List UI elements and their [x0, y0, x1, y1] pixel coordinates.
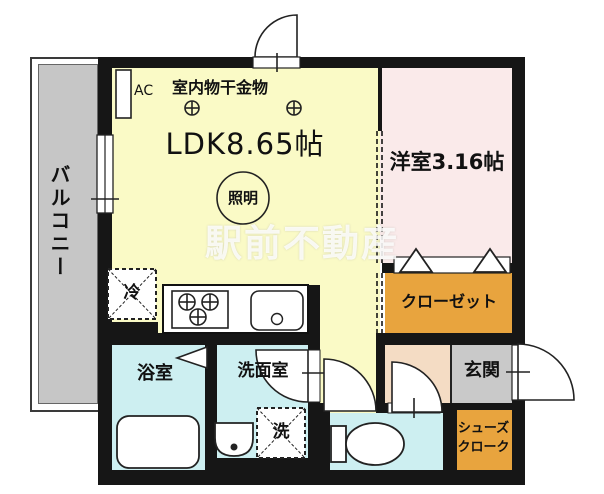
- wall-north: [98, 57, 525, 68]
- wall-bath-washroom: [205, 345, 217, 470]
- wall-genkan-shoes: [452, 403, 512, 410]
- wall-south: [98, 470, 525, 485]
- wall-west: [98, 57, 112, 478]
- wall-east: [512, 57, 525, 478]
- wall-closet-north: [382, 263, 512, 273]
- room-ldk-hall: [320, 333, 377, 413]
- floor-plan: バルコニー AC 室内物干金物 LDK8.65帖 照明 駅前不動産 洋室3.16…: [0, 0, 604, 494]
- refrigerator-label: 冷: [108, 284, 156, 303]
- washroom-label: 洗面室: [219, 362, 307, 381]
- bathroom-label: 浴室: [120, 364, 190, 384]
- ldk-label: LDK8.65帖: [150, 129, 340, 161]
- room-toilet: [330, 413, 443, 470]
- western-room-label: 洋室3.16帖: [382, 151, 512, 174]
- watermark: 駅前不動産: [205, 224, 400, 265]
- wall-hall-west: [308, 285, 320, 413]
- entrance-label: 玄関: [452, 361, 512, 381]
- ac-label: AC: [134, 84, 153, 99]
- washing-machine-label: 洗: [257, 423, 305, 442]
- shoe-closet-label-line2: クローク: [457, 440, 509, 455]
- wall-fridge-stub: [104, 322, 158, 335]
- room-hall: [385, 345, 450, 403]
- balcony-label: バルコニー: [48, 164, 70, 279]
- wall-toilet-west: [308, 403, 330, 470]
- lighting-label: 照明: [217, 190, 269, 207]
- shoe-closet-label: シューズ クローク: [454, 420, 513, 458]
- closet-label: クローゼット: [387, 293, 511, 311]
- wall-closet-south: [376, 333, 512, 345]
- shoe-closet-label-line1: シューズ: [458, 421, 509, 436]
- laundry-hardware-label: 室内物干金物: [172, 79, 268, 97]
- wall-toilet-north: [376, 403, 452, 413]
